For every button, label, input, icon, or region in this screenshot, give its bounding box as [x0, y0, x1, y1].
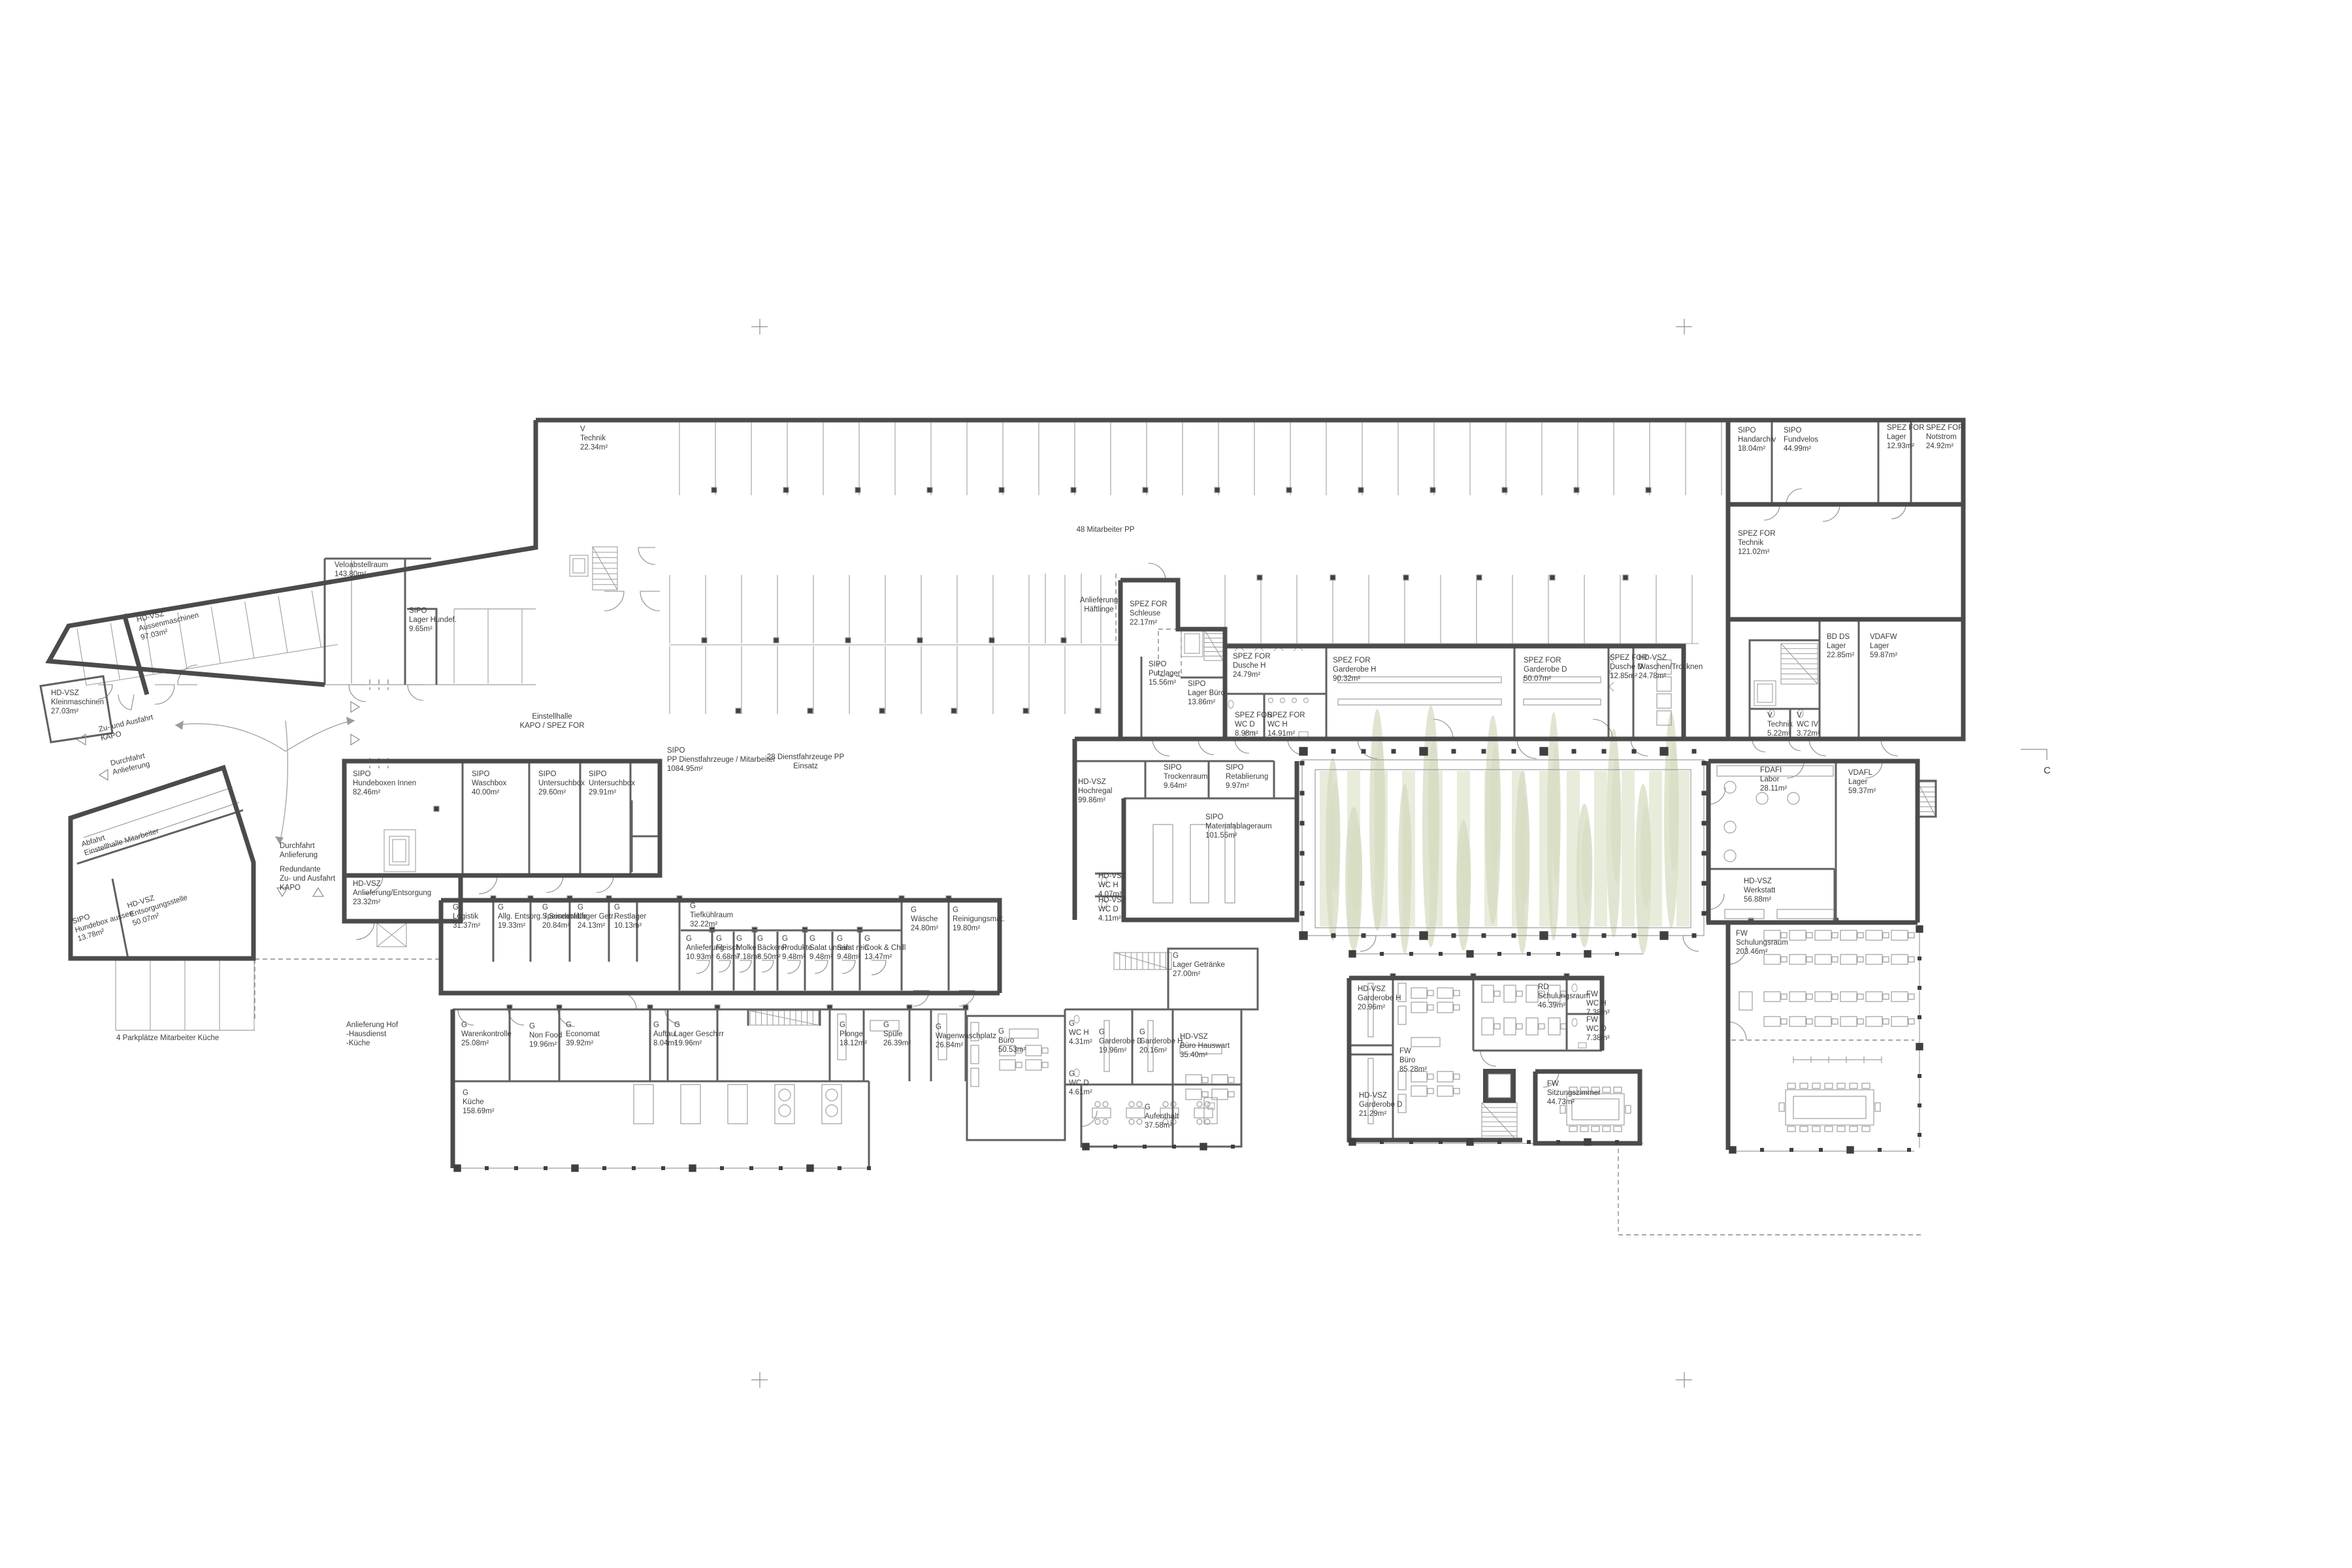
facade-posts	[453, 747, 1923, 1171]
room-sipo-putzlager: SIPOPutzlager15.56m²	[1149, 661, 1181, 687]
note-parkplaetze-kueche: 4 Parkplätze Mitarbeiter Küche	[116, 1034, 219, 1042]
room-hdvsz-garderobe-h2: HD-VSZGarderobe H20.96m²	[1358, 985, 1401, 1011]
room-hdvsz-buero-hauswart: HD-VSZBüro Hauswart35.40m²	[1180, 1033, 1230, 1059]
room-rd-schulungsraum: RDSchulungsraum46.39m²	[1538, 983, 1590, 1009]
room-sipo-hundeboxen-innen: SIPOHundeboxen Innen82.46m²	[353, 770, 416, 796]
room-g-waesche: GWäsche24.80m²	[911, 906, 938, 932]
room-sipo-handarchiv: SIPOHandarchiv18.04m²	[1738, 427, 1776, 453]
note-durchfahrt-anlieferung-1: DurchfahrtAnlieferung	[110, 751, 151, 776]
room-fw-wc-d: FWWC D7.38m²	[1586, 1016, 1610, 1042]
room-g-economat: GEconomat39.92m²	[566, 1021, 600, 1047]
room-g-lager-getraenke: GLager Getränke27.00m²	[1173, 952, 1225, 978]
room-g-molke: GMolke7.18m²	[736, 935, 760, 961]
note-mitarbeiter-pp: 48 Mitarbeiter PP	[1077, 526, 1135, 534]
floor-plan-canvas: VTechnik22.34m²SIPOHandarchiv18.04m²SIPO…	[0, 0, 2352, 1568]
room-spezfor-garderobe-h: SPEZ FORGarderobe H90.32m²	[1333, 657, 1376, 683]
note-section-c: C	[2044, 765, 2051, 776]
room-sipo-untersuchbox-2: SIPOUntersuchbox29.91m²	[589, 770, 635, 796]
room-sipo-waschbox: SIPOWaschbox40.00m²	[472, 770, 507, 796]
room-hdvsz-entsorgungsstelle: HD-VSZEntsorgungsstelle50.07m²	[126, 885, 191, 928]
room-g-produkte: GProdukte9.48m²	[782, 935, 812, 961]
room-fw-sitzungszimmer: FWSitzungszimmer44.73m²	[1547, 1080, 1601, 1106]
note-einstellhalle-kapo: EinstellhalleKAPO / SPEZ FOR	[519, 713, 584, 730]
room-g-kueche: GKüche158.69m²	[463, 1089, 495, 1115]
room-v-wc-iv: VWC IV3.72m²	[1797, 711, 1820, 738]
room-vdafw-lager: VDAFWLager59.87m²	[1870, 633, 1897, 659]
room-sipo-lager-buero: SIPOLager Büro13.86m²	[1188, 680, 1225, 706]
room-fw-wc-h: FWWC H7.38m²	[1586, 990, 1610, 1017]
room-g-buero: GBüro50.53m²	[998, 1028, 1026, 1054]
room-g-wc-h: GWC H4.31m²	[1069, 1020, 1092, 1046]
room-sipo-trockenraum: SIPOTrockenraum9.64m²	[1164, 764, 1207, 790]
parking-stalls	[77, 421, 1838, 1030]
room-g-logistik: GLogistik31.37m²	[453, 904, 480, 930]
floor-plan: VTechnik22.34m²SIPOHandarchiv18.04m²SIPO…	[0, 0, 2352, 1568]
room-g-auftau: GAuftau8.04m²	[653, 1021, 677, 1047]
room-spezfor-garderobe-d: SPEZ FORGarderobe D50.07m²	[1524, 657, 1567, 683]
room-sipo-retablierung: SIPORetablierung9.97m²	[1226, 764, 1268, 790]
room-vdafl-lager: VDAFLLager59.37m²	[1848, 769, 1876, 795]
room-fdafi-labor: FDAFILabor28.11m²	[1760, 766, 1788, 792]
note-abfahrt-einstellhalle: AbfahrtEinstellhalle Mitarbeiter	[80, 819, 159, 858]
room-spezfor-schleuse: SPEZ FORSchleuse22.17m²	[1130, 600, 1168, 627]
room-g-warenkontrolle: GWarenkontrolle25.08m²	[461, 1021, 512, 1047]
room-hdvsz-kleinmaschinen: HD-VSZKleinmaschinen27.03m²	[51, 689, 104, 715]
room-g-restlager: GRestlager10.13m²	[614, 904, 646, 930]
note-durchfahrt-anlieferung-2: DurchfahrtAnlieferung	[280, 842, 318, 859]
room-v-technik-small: VTechnik5.22m²	[1767, 711, 1793, 738]
room-sipo-lager-hundef: SIPOLager Hundef.9.65m²	[409, 607, 457, 633]
room-g-garderobe-d: GGarderobe D19.96m²	[1099, 1028, 1142, 1054]
note-dienstfahrzeuge-einsatz: 28 Dienstfahrzeuge PPEinsatz	[767, 753, 845, 770]
room-spezfor-dusche-h: SPEZ FORDusche H24.79m²	[1233, 653, 1271, 679]
room-hdvsz-garderobe-d2: HD-VSZGarderobe D21.29m²	[1359, 1092, 1402, 1118]
room-g-non-food: GNon Food19.96m²	[529, 1022, 563, 1049]
room-hdvsz-anlieferung-entsorgung: HD-VSZAnlieferung/Entsorgung23.32m²	[353, 880, 431, 906]
room-v-technik-garage: VTechnik22.34m²	[580, 425, 608, 451]
room-spezfor-wc-h: SPEZ FORWC H14.91m²	[1267, 711, 1305, 738]
room-spezfor-notstrom: SPEZ FORNotstrom24.92m²	[1926, 424, 1964, 450]
room-g-spuele: GSpüle26.39m²	[883, 1021, 911, 1047]
room-labels: VTechnik22.34m²SIPOHandarchiv18.04m²SIPO…	[51, 424, 2051, 1130]
room-g-tiefkuehlraum: GTiefkühlraum32.22m²	[690, 902, 733, 928]
room-hdvsz-waschen-trocknen: HD-VSZWaschen/Trocknen24.78m²	[1639, 654, 1703, 680]
room-sipo-fundvelos: SIPOFundvelos44.99m²	[1784, 427, 1818, 453]
room-g-wc-d: GWC D4.61m²	[1069, 1070, 1092, 1096]
note-redundante-ausfahrt: RedundanteZu- und AusfahrtKAPO	[280, 866, 336, 892]
room-g-cook-chill: GCook & Chill13.47m²	[864, 935, 906, 961]
room-hdvsz-werkstatt: HD-VSZWerkstatt56.88m²	[1744, 877, 1776, 904]
note-anlieferung-hof: Anlieferung Hof-Hausdienst-Küche	[346, 1021, 399, 1047]
room-spezfor-lager: SPEZ FORLager12.93m²	[1887, 424, 1925, 450]
room-g-garderobe-h: GGarderobe H20.16m²	[1139, 1028, 1183, 1054]
room-bdds-lager: BD DSLager22.85m²	[1827, 633, 1854, 659]
room-spezfor-wc-d: SPEZ FORWC D8.98m²	[1235, 711, 1273, 738]
note-anlieferung-haeftlinge: AnlieferungHäftlinge	[1080, 596, 1118, 613]
room-fw-buero: FWBüro85.28m²	[1399, 1047, 1427, 1073]
room-g-aufenthalt: GAufenthalt37.58m²	[1145, 1103, 1179, 1130]
note-sipo-pp-dienstfahrzeuge: SIPOPP Dienstfahrzeuge / Mitarbeiter1084…	[667, 747, 776, 773]
note-zu-ausfahrt-kapo: Zu- und AusfahrtKAPO	[98, 713, 156, 743]
room-sipo-untersuchbox-1: SIPOUntersuchbox29.60m²	[538, 770, 585, 796]
room-spezfor-technik: SPEZ FORTechnik121.02m²	[1738, 530, 1776, 556]
room-g-reinigungsmat: GReinigungsmat.19.80m²	[953, 906, 1005, 932]
courtyard-garden	[1315, 706, 1691, 954]
room-sipo-materialablageraum: SIPOMaterialablageraum101.55m²	[1205, 813, 1272, 840]
room-hdvsz-hochregal: HD-VSZHochregal99.86m²	[1078, 778, 1112, 804]
